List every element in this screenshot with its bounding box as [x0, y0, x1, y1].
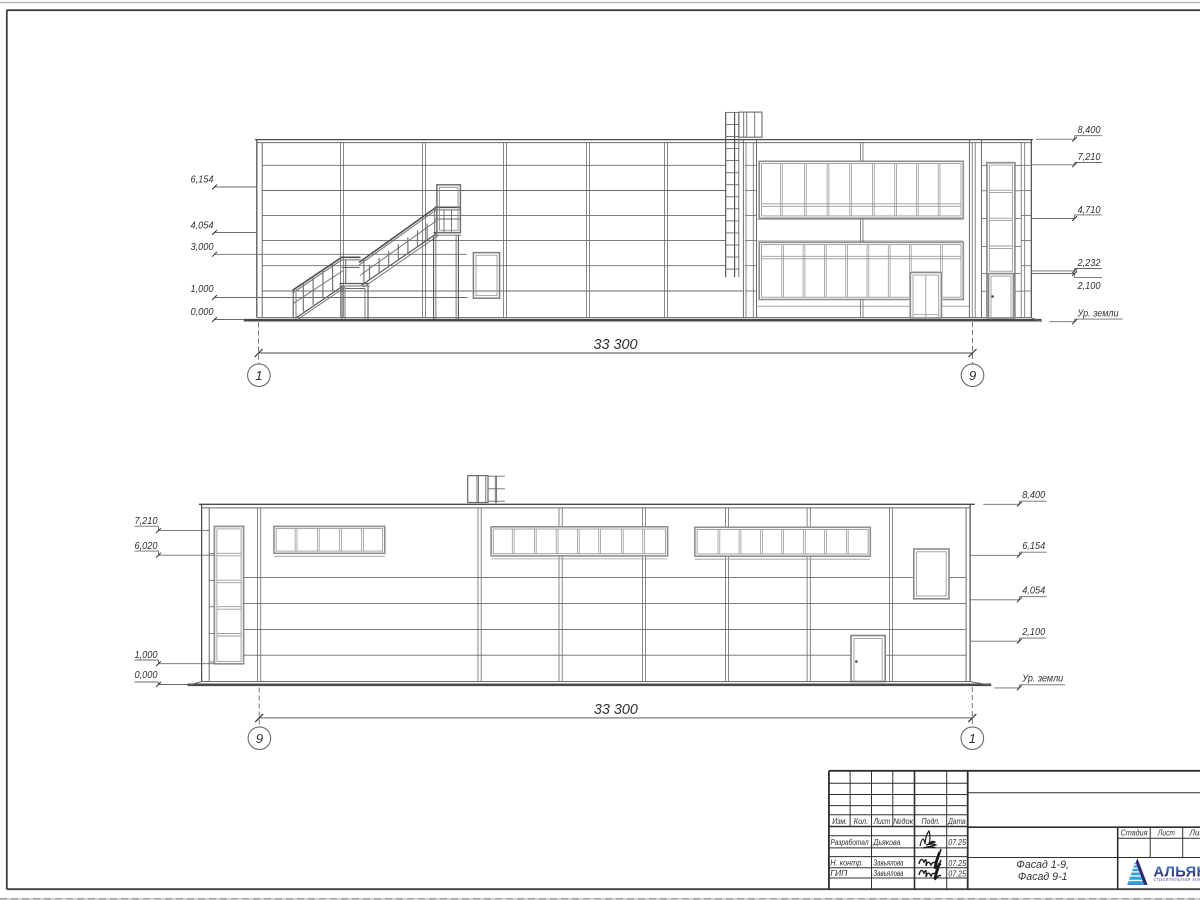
svg-text:33 300: 33 300: [594, 702, 638, 718]
svg-text:7,210: 7,210: [135, 516, 158, 527]
svg-text:1: 1: [969, 731, 976, 746]
svg-text:Завьялова: Завьялова: [873, 868, 903, 878]
svg-text:Дьякова: Дьякова: [873, 837, 901, 847]
svg-text:2,100: 2,100: [1077, 281, 1101, 292]
svg-text:Фасад 9-1: Фасад 9-1: [1018, 871, 1068, 883]
svg-text:4,054: 4,054: [1022, 585, 1045, 596]
svg-text:Ур. земли: Ур. земли: [1077, 308, 1119, 319]
svg-text:6,154: 6,154: [191, 174, 214, 185]
svg-text:3,000: 3,000: [191, 242, 214, 253]
svg-text:4,710: 4,710: [1078, 205, 1101, 216]
svg-text:Завьялова: Завьялова: [873, 858, 903, 868]
svg-text:8,400: 8,400: [1078, 125, 1101, 136]
svg-text:Ур. земли: Ур. земли: [1021, 673, 1063, 684]
svg-text:2,100: 2,100: [1021, 627, 1045, 638]
svg-text:Фасад 1-9,: Фасад 1-9,: [1016, 859, 1069, 871]
svg-text:Дата: Дата: [947, 816, 965, 826]
svg-text:7,210: 7,210: [1078, 152, 1101, 163]
svg-text:1: 1: [255, 368, 262, 383]
svg-text:Кол.: Кол.: [854, 816, 869, 826]
svg-text:строительная компания: строительная компания: [1154, 877, 1200, 883]
svg-text:Подп.: Подп.: [922, 816, 941, 826]
svg-text:8,400: 8,400: [1022, 490, 1045, 501]
svg-text:33 300: 33 300: [594, 337, 638, 353]
svg-text:1,000: 1,000: [135, 650, 158, 661]
svg-text:9: 9: [969, 368, 977, 383]
svg-text:2,232: 2,232: [1077, 258, 1101, 269]
svg-text:ГИП: ГИП: [830, 868, 848, 878]
svg-text:6,154: 6,154: [1022, 541, 1045, 552]
svg-text:Н. контр.: Н. контр.: [830, 858, 863, 868]
svg-text:Стадия: Стадия: [1121, 828, 1148, 838]
svg-text:1,000: 1,000: [191, 284, 214, 295]
svg-text:Лис: Лис: [1189, 828, 1200, 838]
svg-text:07.25: 07.25: [948, 868, 966, 878]
svg-text:6,020: 6,020: [135, 541, 158, 552]
svg-text:07.25: 07.25: [948, 858, 966, 868]
svg-text:9: 9: [256, 731, 264, 746]
svg-text:Лист: Лист: [1157, 828, 1175, 838]
svg-text:0,000: 0,000: [191, 307, 214, 318]
svg-text:4,054: 4,054: [191, 220, 214, 231]
svg-text:0,000: 0,000: [135, 670, 158, 681]
svg-text:Разработал: Разработал: [831, 837, 869, 847]
svg-text:№док: №док: [893, 816, 914, 826]
svg-text:Лист: Лист: [873, 816, 890, 826]
svg-text:07.25: 07.25: [948, 837, 966, 847]
svg-text:Изм.: Изм.: [832, 816, 847, 826]
